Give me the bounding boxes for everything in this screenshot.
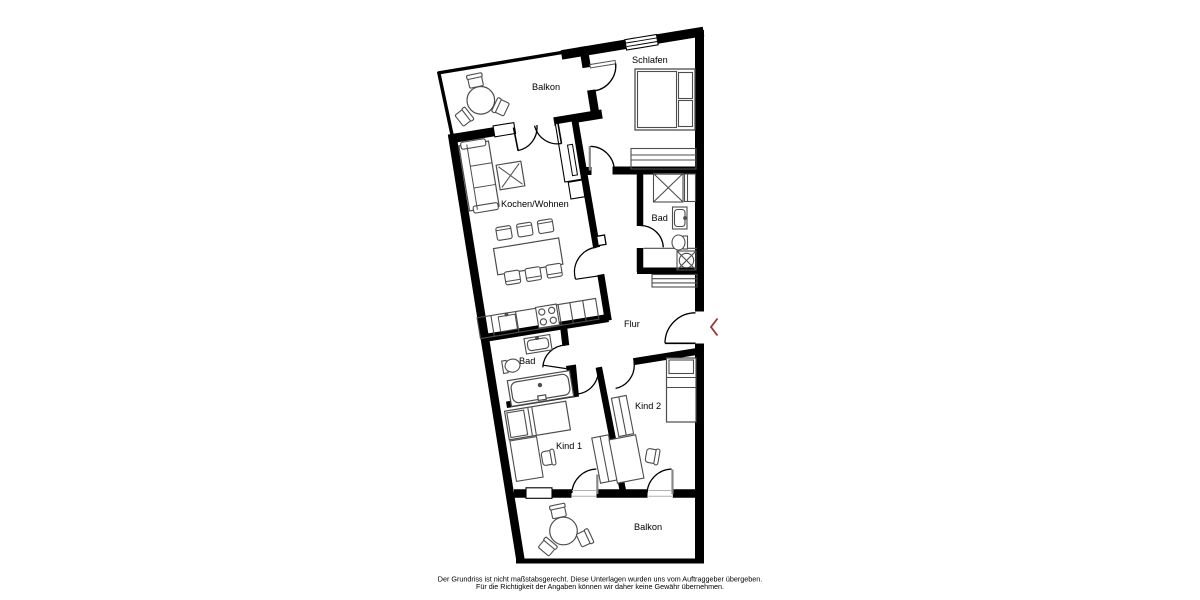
svg-text:Schlafen: Schlafen xyxy=(632,55,668,65)
svg-text:Kind 2: Kind 2 xyxy=(635,401,661,411)
svg-text:Flur: Flur xyxy=(624,319,640,329)
svg-text:Balkon: Balkon xyxy=(634,522,662,532)
svg-text:Kind 1: Kind 1 xyxy=(556,441,582,451)
svg-text:Bad: Bad xyxy=(519,356,535,366)
svg-text:Balkon: Balkon xyxy=(532,82,560,92)
svg-text:Kochen/Wohnen: Kochen/Wohnen xyxy=(501,199,569,209)
svg-text:Für die Richtigkeit der Angabe: Für die Richtigkeit der Angaben können w… xyxy=(476,582,724,591)
svg-text:Bad: Bad xyxy=(652,213,668,223)
